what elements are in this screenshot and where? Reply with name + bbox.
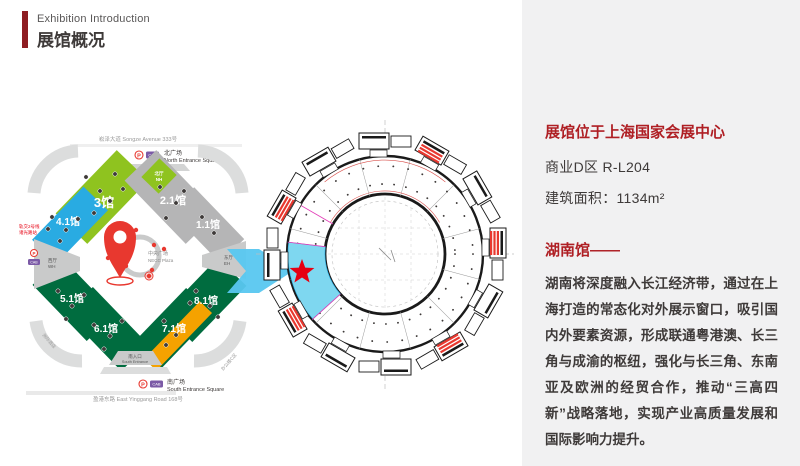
svg-text:CAB: CAB — [30, 261, 38, 265]
svg-text:6.1馆: 6.1馆 — [94, 322, 118, 335]
svg-text:7.1馆: 7.1馆 — [162, 322, 186, 335]
slide: Exhibition Introduction 展馆概况 崧泽大道 Songze… — [0, 0, 800, 466]
svg-text:P: P — [32, 251, 35, 256]
svg-text:P: P — [141, 382, 145, 388]
area-line: 建筑面积：1134m² — [545, 188, 778, 208]
svg-text:NH: NH — [156, 177, 163, 182]
road-top-label: 崧泽大道 Songze Avenue 333号 — [99, 135, 178, 143]
svg-text:南入口: 南入口 — [128, 353, 142, 360]
pavilion-title: 湖南馆—— — [545, 239, 778, 260]
svg-text:诸光路站: 诸光路站 — [19, 229, 37, 236]
first-aid-icon — [145, 272, 153, 280]
location-title: 展馆位于上海国家会展中心 — [545, 121, 778, 142]
info-panel: 展馆位于上海国家会展中心 商业D区 R-L204 建筑面积：1134m² 湖南馆… — [522, 0, 800, 466]
north-road-line — [70, 144, 242, 147]
svg-text:4.1馆: 4.1馆 — [56, 215, 80, 228]
parking-icon: P — [137, 153, 141, 159]
pavilion-description: 湖南将深度融入长江经济带，通过在上海打造的常态化对外展示窗口，吸引国内外要素资源… — [545, 271, 778, 453]
zone-line: 商业D区 R-L204 — [545, 157, 778, 177]
svg-text:CAB: CAB — [152, 382, 161, 387]
svg-text:北厅: 北厅 — [155, 170, 164, 177]
south-square: P CAB 南广场 South Entrance Square — [139, 378, 224, 393]
svg-text:South Entrance: South Entrance — [122, 360, 148, 364]
header-accent-bar — [22, 11, 28, 48]
page-header: Exhibition Introduction 展馆概况 — [22, 11, 150, 51]
floorplan-ring — [252, 116, 520, 394]
svg-text:5.1馆: 5.1馆 — [60, 292, 84, 305]
svg-text:1.1馆: 1.1馆 — [196, 218, 220, 231]
plaza-en: NECC Plaza — [148, 258, 174, 263]
plaza-zh: 中央广场 — [148, 250, 168, 257]
svg-text:轨交2号线: 轨交2号线 — [19, 223, 40, 230]
page-title: 展馆概况 — [37, 26, 150, 51]
svg-text:8.1馆: 8.1馆 — [194, 294, 218, 307]
header-kicker: Exhibition Introduction — [37, 11, 150, 25]
north-square-zh: 北广场 — [164, 149, 182, 157]
road-bottom-label: 盈港东路 East Yinggang Road 168号 — [93, 395, 183, 403]
svg-text:WH: WH — [48, 264, 56, 269]
svg-text:南广场: 南广场 — [167, 378, 185, 386]
svg-text:2.1馆: 2.1馆 — [160, 193, 186, 207]
necc-site-map: 崧泽大道 Songze Avenue 333号 P CAB 北广场 North … — [18, 129, 258, 403]
